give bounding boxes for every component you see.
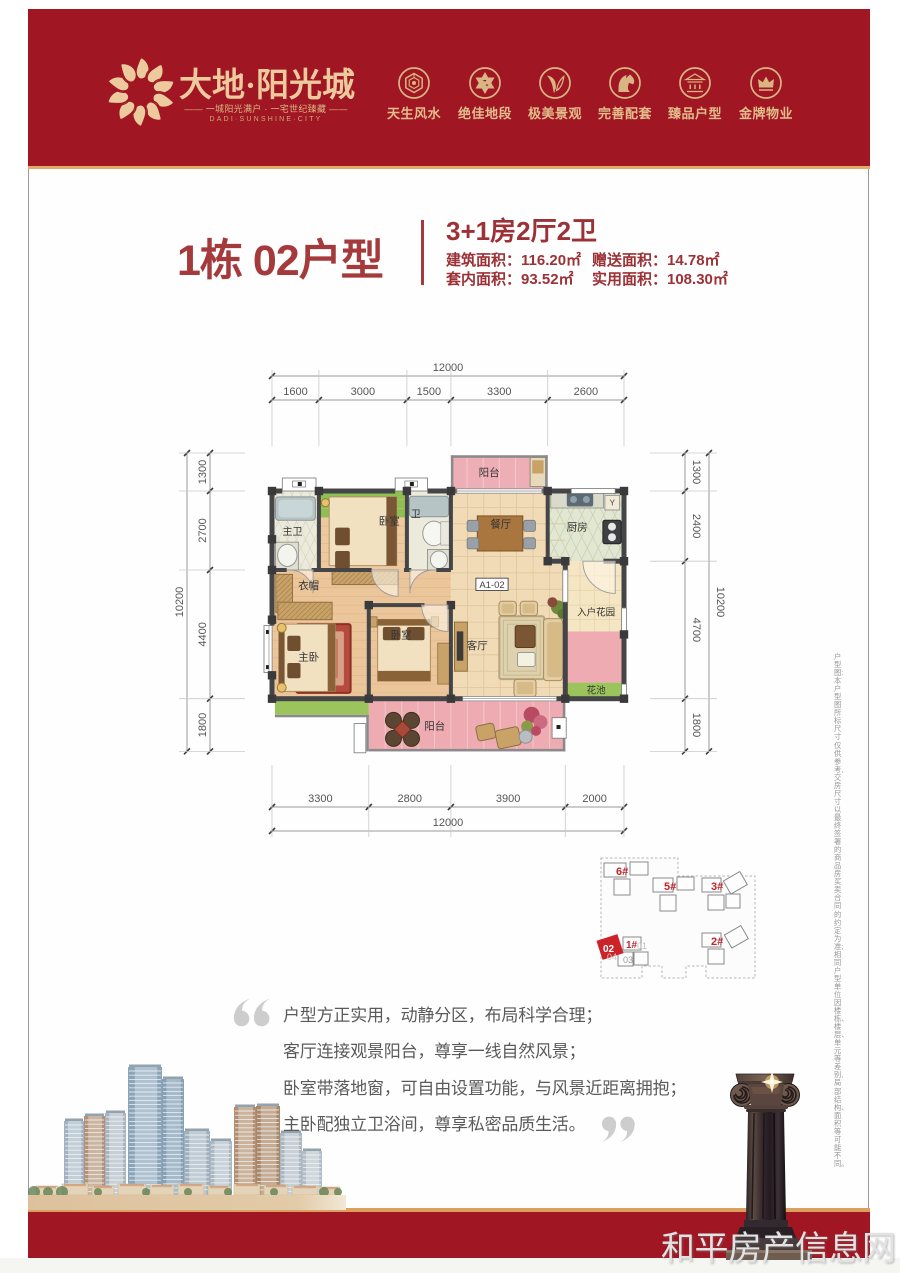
svg-text:2400: 2400 <box>690 514 702 538</box>
svg-text:5#: 5# <box>664 881 676 893</box>
svg-text:客厅: 客厅 <box>467 639 488 652</box>
svg-text:3900: 3900 <box>496 793 520 805</box>
svg-text:1#: 1# <box>626 940 638 951</box>
svg-text:Y: Y <box>610 499 616 508</box>
svg-text:12000: 12000 <box>433 362 464 374</box>
svg-text:卫: 卫 <box>411 509 421 520</box>
svg-text:4400: 4400 <box>197 622 209 646</box>
svg-text:03: 03 <box>623 955 633 965</box>
svg-text:2#: 2# <box>711 936 723 948</box>
svg-text:主卧: 主卧 <box>298 651 319 664</box>
svg-text:1800: 1800 <box>690 713 702 737</box>
svg-text:2000: 2000 <box>582 793 606 805</box>
svg-text:主卫: 主卫 <box>283 526 303 538</box>
svg-text:10200: 10200 <box>714 587 726 618</box>
svg-text:1500: 1500 <box>417 386 441 398</box>
svg-text:阳台: 阳台 <box>479 466 500 479</box>
svg-text:1300: 1300 <box>690 460 702 484</box>
svg-text:01: 01 <box>637 941 647 951</box>
svg-text:6#: 6# <box>616 866 628 878</box>
svg-text:A1-02: A1-02 <box>479 580 504 591</box>
svg-text:阳台: 阳台 <box>424 719 445 732</box>
svg-text:衣帽: 衣帽 <box>298 579 319 592</box>
svg-text:12000: 12000 <box>433 817 464 829</box>
svg-text:入户花园: 入户花园 <box>577 606 615 618</box>
svg-text:4700: 4700 <box>690 618 702 642</box>
svg-text:1300: 1300 <box>197 460 209 484</box>
svg-text:卧室: 卧室 <box>391 629 412 642</box>
svg-text:3300: 3300 <box>487 386 511 398</box>
svg-text:3000: 3000 <box>351 386 375 398</box>
svg-text:卧室: 卧室 <box>379 515 400 528</box>
svg-text:花池: 花池 <box>587 684 607 696</box>
svg-text:2800: 2800 <box>398 793 422 805</box>
svg-text:1600: 1600 <box>283 386 307 398</box>
svg-text:3300: 3300 <box>308 793 332 805</box>
svg-text:厨房: 厨房 <box>567 521 588 534</box>
svg-text:1800: 1800 <box>197 713 209 737</box>
svg-text:3#: 3# <box>711 881 723 893</box>
svg-text:2700: 2700 <box>197 518 209 542</box>
svg-text:餐厅: 餐厅 <box>490 518 511 531</box>
svg-text:04: 04 <box>607 952 617 962</box>
svg-text:10200: 10200 <box>174 587 186 618</box>
svg-text:2600: 2600 <box>574 386 598 398</box>
